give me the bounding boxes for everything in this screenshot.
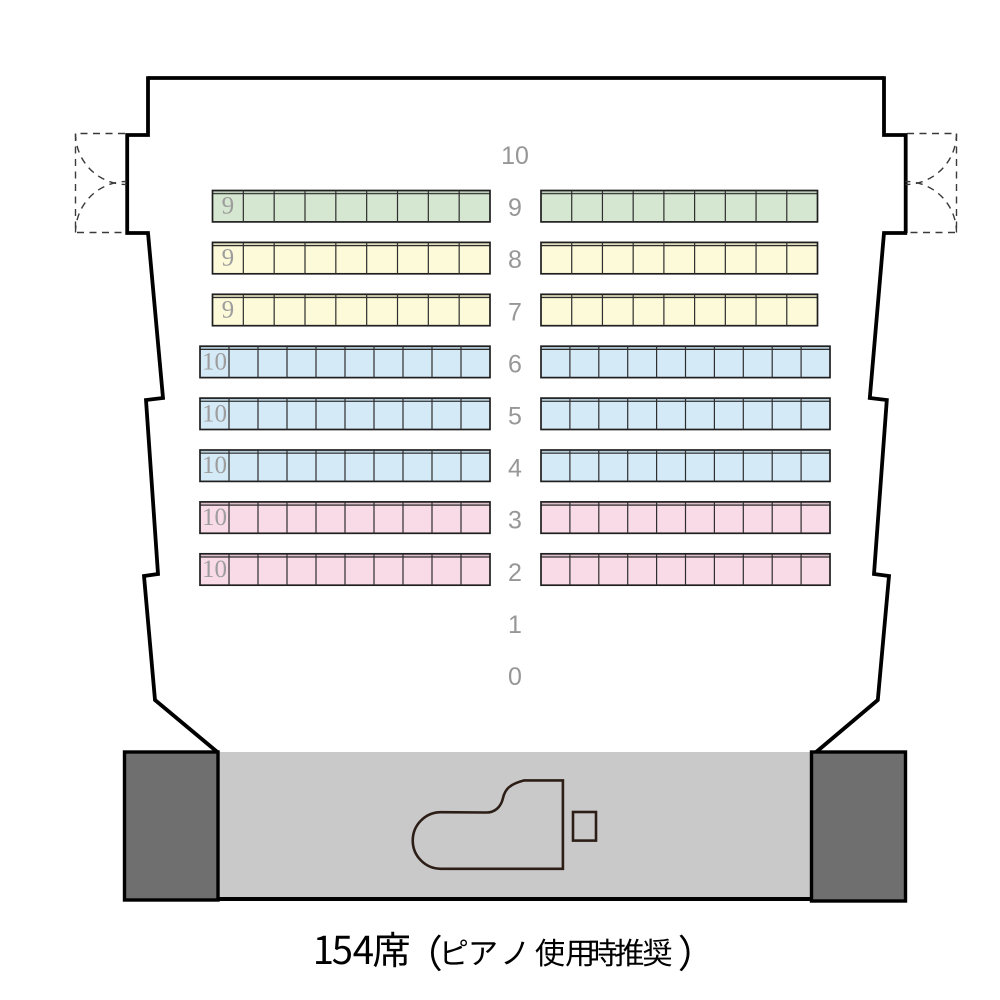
svg-text:10: 10	[202, 556, 227, 583]
svg-text:9: 9	[508, 194, 522, 222]
svg-text:10: 10	[202, 348, 227, 375]
svg-text:8: 8	[508, 246, 522, 274]
svg-text:9: 9	[222, 245, 235, 272]
svg-text:6: 6	[508, 350, 522, 378]
svg-text:5: 5	[508, 403, 522, 431]
svg-text:10: 10	[202, 400, 227, 427]
svg-text:1: 1	[508, 611, 522, 639]
svg-text:10: 10	[202, 504, 227, 531]
svg-text:10: 10	[202, 452, 227, 479]
svg-text:9: 9	[222, 297, 235, 324]
svg-text:0: 0	[508, 663, 522, 691]
svg-text:2: 2	[508, 559, 522, 587]
svg-text:9: 9	[222, 193, 235, 220]
svg-text:10: 10	[501, 142, 529, 170]
svg-text:4: 4	[508, 455, 522, 483]
svg-text:7: 7	[508, 298, 522, 326]
svg-text:3: 3	[508, 507, 522, 535]
